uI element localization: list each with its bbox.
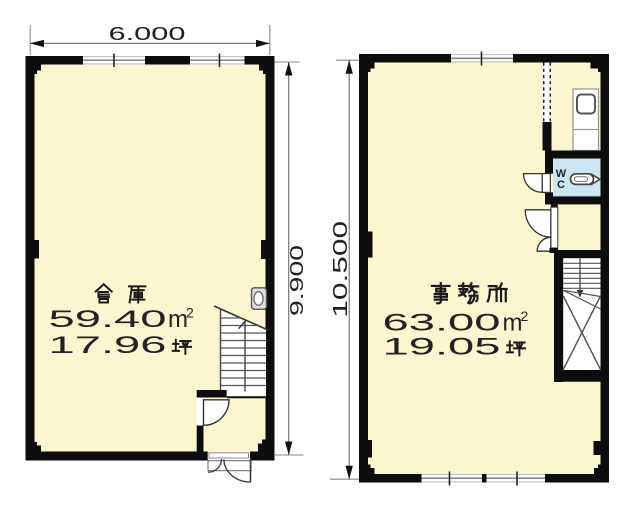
svg-text:6.000: 6.000 [109, 24, 186, 44]
svg-text:63.00: 63.00 [383, 310, 501, 337]
svg-text:19.05: 19.05 [383, 334, 501, 361]
svg-text:C: C [557, 179, 565, 191]
svg-text:m: m [503, 310, 523, 337]
svg-text:2: 2 [521, 308, 529, 324]
svg-text:10.500: 10.500 [330, 221, 352, 318]
svg-text:9.900: 9.900 [287, 245, 307, 316]
svg-text:m: m [168, 306, 188, 333]
svg-text:17.96: 17.96 [49, 332, 167, 359]
svg-text:59.40: 59.40 [49, 306, 167, 333]
svg-text:2: 2 [186, 305, 194, 321]
